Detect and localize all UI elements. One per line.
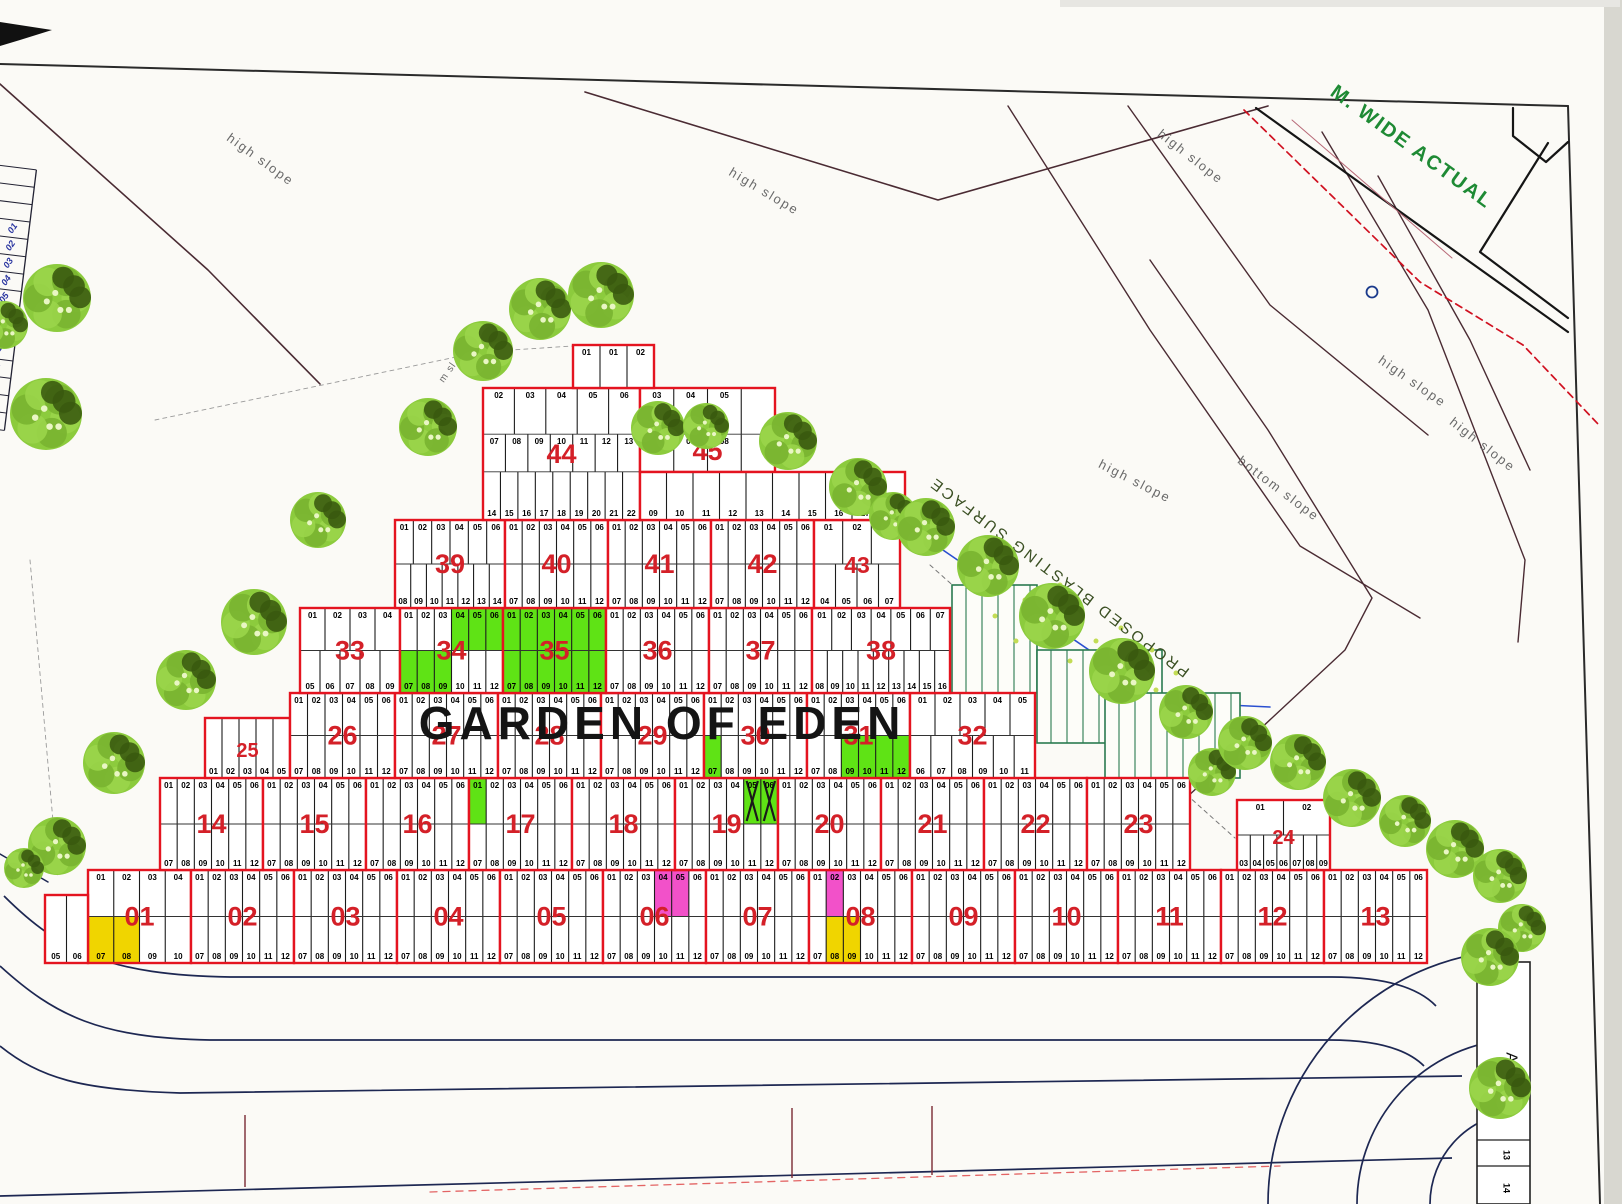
lot-number: 06 [1177, 781, 1186, 790]
lot-number: 12 [662, 859, 671, 868]
lot-number: 03 [332, 873, 341, 882]
block-number: 35 [539, 636, 569, 666]
lot-number: 08 [521, 952, 530, 961]
lot-number: 09 [831, 682, 840, 691]
lot-number: 12 [796, 952, 805, 961]
lot-number: 08 [398, 597, 407, 606]
lot-number: 06 [868, 781, 877, 790]
lot-number: 02 [212, 873, 221, 882]
lot-number: 11 [851, 859, 860, 868]
lot-number: 07 [1122, 952, 1131, 961]
lot-number: 03 [1022, 781, 1031, 790]
tree-icon [957, 535, 1019, 597]
plot-block-23: 01020304050607080910111223 [1087, 778, 1190, 870]
lot-number: 15 [505, 509, 514, 518]
lot-number: 01 [824, 523, 833, 532]
tree-icon [1379, 795, 1431, 847]
lot-number: 08 [212, 952, 221, 961]
lot-number: 02 [494, 391, 503, 400]
lot-number: 07 [404, 682, 413, 691]
lot-number: 02 [1139, 873, 1148, 882]
lot-number: 08 [958, 767, 967, 776]
block-number: 21 [917, 809, 947, 839]
lot-number: 11 [573, 952, 582, 961]
tree-icon [631, 401, 685, 455]
lot-number: 02 [732, 523, 741, 532]
lot-number: 11 [468, 767, 477, 776]
lot-number: 05 [784, 523, 793, 532]
lot-number: 05 [1088, 873, 1097, 882]
lot-number: 04 [1252, 859, 1261, 868]
lot-number: 11 [681, 597, 690, 606]
lot-number: 04 [937, 781, 946, 790]
lot-number: 07 [885, 597, 894, 606]
plot-block-33: 01020304050607080933 [300, 608, 400, 693]
lot-number: 06 [662, 781, 671, 790]
lot-number: 12 [728, 509, 737, 518]
lot-number: 08 [730, 682, 739, 691]
lot-number: 04 [1040, 781, 1049, 790]
tree-icon [1218, 716, 1272, 770]
lot-number: 04 [347, 696, 356, 705]
lot-number: 01 [1328, 873, 1337, 882]
lot-number: 14 [907, 682, 916, 691]
plot-block-annex: 010102 [573, 345, 654, 388]
lot-number: 05 [782, 611, 791, 620]
lot-number: 07 [612, 597, 621, 606]
lot-number: 12 [698, 597, 707, 606]
lot-number: 06 [326, 682, 335, 691]
lot-number: 01 [582, 348, 591, 357]
block-number: 23 [1123, 809, 1153, 839]
lot-number: 10 [1040, 859, 1049, 868]
lot-number: 10 [216, 859, 225, 868]
lot-number: 12 [353, 859, 362, 868]
lot-number: 07 [164, 859, 173, 868]
lot-number: 01 [399, 696, 408, 705]
lot-number: 01 [1225, 873, 1234, 882]
lot-number: 01 [400, 523, 409, 532]
lot-number: 06 [1105, 873, 1114, 882]
lot-number: 03 [610, 781, 619, 790]
lot-number: 09 [538, 952, 547, 961]
lot-number: 05 [233, 781, 242, 790]
lot-number: 06 [384, 873, 393, 882]
lot-number: 09 [978, 767, 987, 776]
block-number: 16 [402, 809, 432, 839]
lot-number: 12 [897, 767, 906, 776]
lot-number: 17 [540, 509, 549, 518]
lot-number: 14 [487, 509, 496, 518]
tree-icon [399, 398, 457, 456]
lot-number: 11 [264, 952, 273, 961]
lot-number: 08 [512, 437, 521, 446]
tree-icon [83, 732, 145, 794]
lot-number: 07 [1225, 952, 1234, 961]
lot-number: 02 [315, 873, 324, 882]
block-number: 26 [327, 721, 357, 751]
lot-number: 07 [502, 767, 511, 776]
lot-number: 11 [542, 859, 551, 868]
lot-number: 05 [748, 781, 757, 790]
lot-number: 02 [122, 873, 131, 882]
lot-number: 07 [710, 952, 719, 961]
lot-number: 12 [281, 952, 290, 961]
lot-number: 08 [1345, 952, 1354, 961]
site-plan-page: GARDEN OF EDEN 0102030405060701020301020… [0, 0, 1622, 1204]
lot-number: 06 [693, 873, 702, 882]
lot-number: 04 [664, 523, 673, 532]
lot-number: 11 [645, 859, 654, 868]
lot-number: 02 [312, 696, 321, 705]
lot-number: 03 [435, 873, 444, 882]
lot-number: 07 [96, 952, 105, 961]
lot-number: 07 [473, 859, 482, 868]
lot-number: 09 [148, 952, 157, 961]
plot-block-20: 01020304050607080910111220 [778, 778, 881, 870]
lot-number: 01 [509, 523, 518, 532]
lot-number: 03 [526, 391, 535, 400]
block-number: 32 [957, 721, 987, 751]
lot-number: 07 [916, 952, 925, 961]
lot-number: 08 [1139, 952, 1148, 961]
lot-number: 03 [198, 781, 207, 790]
lot-number: 02 [418, 523, 427, 532]
lot-number: 04 [247, 873, 256, 882]
lot-number: 05 [439, 781, 448, 790]
lot-number: 01 [308, 611, 317, 620]
lot-number: 05 [896, 611, 905, 620]
lot-number: 02 [629, 523, 638, 532]
lot-number: 08 [387, 859, 396, 868]
lot-number: 12 [559, 859, 568, 868]
lot-number: 11 [985, 952, 994, 961]
lot-number: 05 [336, 781, 345, 790]
lot-number: 11 [365, 767, 374, 776]
lot-number: 01 [504, 873, 513, 882]
lot-number: 08 [799, 859, 808, 868]
lot-number: 10 [456, 682, 465, 691]
lot-number: 06 [1311, 873, 1320, 882]
lot-number: 13 [755, 509, 764, 518]
lot-number: 10 [760, 767, 769, 776]
plot-block-25: 010203040525 [205, 718, 290, 778]
lot-number: 09 [1156, 952, 1165, 961]
lot-number: 09 [610, 859, 619, 868]
lot-number: 07 [370, 859, 379, 868]
lot-number: 09 [1362, 952, 1371, 961]
lot-number: 12 [384, 952, 393, 961]
lot-number: 12 [693, 952, 702, 961]
lot-number: 07 [813, 952, 822, 961]
lot-number: 01 [298, 873, 307, 882]
lot-number: 04 [556, 873, 565, 882]
lot-number: 03 [652, 391, 661, 400]
lot-number: 03 [857, 611, 866, 620]
lot-number: 08 [312, 767, 321, 776]
lot-number: 01 [612, 523, 621, 532]
tree-icon [1469, 1057, 1531, 1119]
lot-number: 12 [799, 682, 808, 691]
lot-number: 08 [524, 682, 533, 691]
lot-number: 05 [51, 952, 60, 961]
lot-number: 10 [657, 767, 666, 776]
lot-number: 10 [767, 597, 776, 606]
block-number: 03 [330, 902, 360, 932]
tree-icon [156, 650, 216, 710]
lot-number: 10 [422, 859, 431, 868]
lot-number: 04 [260, 767, 269, 776]
block-number: 20 [814, 809, 844, 839]
lot-number: 11 [784, 597, 793, 606]
lot-number: 05 [779, 873, 788, 882]
lot-number: 03 [1259, 873, 1268, 882]
lot-number: 12 [588, 767, 597, 776]
block-number: 17 [505, 809, 535, 839]
lot-number: 04 [319, 781, 328, 790]
lot-number: 19 [574, 509, 583, 518]
lot-number: 05 [1160, 781, 1169, 790]
plot-block-17: 01020304050607080910111217 [469, 778, 572, 870]
block-number: 11 [1155, 902, 1184, 932]
lot-number: 08 [421, 682, 430, 691]
lot-number: 02 [1036, 873, 1045, 882]
plot-block-15: 01020304050607080910111215 [263, 778, 366, 870]
lot-number: 07 [401, 952, 410, 961]
lot-number: 05 [573, 873, 582, 882]
lot-number: 11 [777, 767, 786, 776]
lot-number: 10 [765, 682, 774, 691]
lot-number: 07 [1091, 859, 1100, 868]
lot-number: 12 [868, 859, 877, 868]
lot-number: 06 [250, 781, 259, 790]
lot-number: 12 [487, 952, 496, 961]
lot-number: 05 [851, 781, 860, 790]
plot-block-10: 01020304050607080910111210 [1015, 870, 1118, 963]
lot-number: 09 [747, 682, 756, 691]
lot-number: 03 [641, 873, 650, 882]
lot-number: 06 [698, 523, 707, 532]
block-number: 10 [1051, 902, 1081, 932]
lot-number: 06 [593, 611, 602, 620]
vegetation-speckle [1014, 639, 1019, 644]
lot-number: 08 [627, 682, 636, 691]
lot-number: 09 [198, 859, 207, 868]
block-number: 36 [642, 636, 672, 666]
lot-number: 11 [1191, 952, 1200, 961]
lot-number: 11 [571, 767, 580, 776]
lot-number: 07 [605, 767, 614, 776]
lot-number: 08 [519, 767, 528, 776]
lot-number: 08 [622, 767, 631, 776]
lot-number: 11 [1397, 952, 1406, 961]
lot-number: 06 [796, 873, 805, 882]
lot-number: 07 [811, 767, 820, 776]
lot-number: 10 [659, 952, 668, 961]
lot-number: 01 [370, 781, 379, 790]
lot-number: 11 [367, 952, 376, 961]
lot-number: 12 [1177, 859, 1186, 868]
block-number: 09 [948, 902, 978, 932]
lot-number: 10 [347, 767, 356, 776]
lot-number: 09 [536, 767, 545, 776]
lot-number: 05 [645, 781, 654, 790]
tree-icon [1159, 685, 1213, 739]
lot-number: 09 [301, 859, 310, 868]
lot-number: 03 [436, 523, 445, 532]
lot-number: 12 [490, 682, 499, 691]
lot-number: 06 [916, 767, 925, 776]
lot-number: 07 [937, 767, 946, 776]
lot-number: 08 [284, 859, 293, 868]
lot-number: 09 [438, 682, 447, 691]
block-number: 18 [608, 809, 638, 839]
lot-number: 01 [404, 611, 413, 620]
lot-number: 10 [554, 767, 563, 776]
lot-number: 09 [1022, 859, 1031, 868]
lot-number: 08 [815, 682, 824, 691]
lot-number: 01 [607, 873, 616, 882]
lot-number: 04 [350, 873, 359, 882]
lot-number: 12 [456, 859, 465, 868]
lot-number: 11 [676, 952, 685, 961]
lot-number: 10 [559, 682, 568, 691]
lot-number: 02 [830, 873, 839, 882]
lot-number: 01 [710, 873, 719, 882]
lot-number: 02 [636, 348, 645, 357]
lot-number: 05 [1294, 873, 1303, 882]
plot-block-09: 01020304050607080910111209 [912, 870, 1015, 963]
lot-number: 07 [1328, 952, 1337, 961]
plot-block-11: 01020304050607080910111211 [1118, 870, 1221, 963]
lot-number: 08 [1306, 859, 1315, 868]
lot-number: 11 [779, 952, 788, 961]
lot-number: 01 [294, 696, 303, 705]
lot-number: 10 [865, 952, 874, 961]
lot-number: 04 [731, 781, 740, 790]
lot-number: 01 [782, 781, 791, 790]
lot-number: 09 [742, 767, 751, 776]
block-number: 05 [536, 902, 566, 932]
plot-block-08: 01020304050607080910111208 [809, 870, 912, 963]
lot-number: 09 [404, 859, 413, 868]
lot-number: 01 [401, 873, 410, 882]
lot-number: 07 [195, 952, 204, 961]
lot-number: 09 [229, 952, 238, 961]
lot-number: 04 [453, 873, 462, 882]
lot-number: 05 [588, 391, 597, 400]
lot-number: 06 [765, 781, 774, 790]
tree-icon [4, 848, 44, 888]
lot-number: 11 [1020, 767, 1029, 776]
lot-number: 05 [470, 873, 479, 882]
lot-number: 05 [681, 523, 690, 532]
lot-number: 02 [727, 873, 736, 882]
block-number: 34 [436, 636, 466, 666]
lot-number: 01 [610, 611, 619, 620]
lot-number: 01 [609, 348, 618, 357]
lot-number: 07 [679, 859, 688, 868]
lot-number: 07 [399, 767, 408, 776]
lot-number: 03 [507, 781, 516, 790]
lot-number: 05 [264, 873, 273, 882]
plot-block-04: 01020304050607080910111204 [397, 870, 500, 963]
tree-icon [759, 412, 817, 470]
lot-number: 05 [364, 696, 373, 705]
lot-number: 02 [730, 611, 739, 620]
lot-number: 09 [816, 859, 825, 868]
lot-number: 04 [1277, 873, 1286, 882]
lot-number: 10 [1071, 952, 1080, 961]
lot-number: 04 [765, 611, 774, 620]
lot-number: 12 [590, 952, 599, 961]
lot-number: 01 [96, 873, 105, 882]
block-number: 01 [124, 902, 154, 932]
lot-number: 03 [644, 611, 653, 620]
lot-number: 05 [720, 391, 729, 400]
lot-number: 11 [882, 952, 891, 961]
lot-number: 09 [541, 682, 550, 691]
lot-number: 12 [1208, 952, 1217, 961]
lot-number: 11 [1057, 859, 1066, 868]
lot-number: 03 [1053, 873, 1062, 882]
lot-number: 05 [1397, 873, 1406, 882]
plot-block-05: 01020304050607080910111205 [500, 870, 603, 963]
lot-number: 12 [1414, 952, 1423, 961]
tree-icon [23, 264, 91, 332]
lot-number: 04 [1174, 873, 1183, 882]
lot-number: 05 [1057, 781, 1066, 790]
lot-number: 07 [490, 437, 499, 446]
lot-number: 06 [595, 523, 604, 532]
lot-number: 01 [473, 781, 482, 790]
tree-icon [683, 403, 729, 449]
lot-number: 04 [1380, 873, 1389, 882]
lot-number: 21 [609, 509, 618, 518]
lot-number: 02 [181, 781, 190, 790]
lot-number: 09 [1053, 952, 1062, 961]
plot-block-39: 0102030405060809101112131439 [395, 520, 505, 608]
tree-icon [1089, 638, 1155, 704]
lot-number: 03 [1362, 873, 1371, 882]
plot-block-03: 01020304050607080910111203 [294, 870, 397, 963]
lot-number: 02 [853, 523, 862, 532]
lot-number: 02 [524, 611, 533, 620]
lot-number: 04 [993, 696, 1002, 705]
lot-number: 12 [794, 767, 803, 776]
lot-number: 03 [1125, 781, 1134, 790]
lot-number: 01 [1256, 803, 1265, 812]
block-number: 44 [546, 439, 576, 469]
lot-number: 03 [816, 781, 825, 790]
lot-number: 07 [504, 952, 513, 961]
lot-number: 08 [1242, 952, 1251, 961]
plot-block-36: 01020304050607080910111236 [606, 608, 709, 693]
lot-number: 05 [277, 767, 286, 776]
lot-number: 05 [576, 611, 585, 620]
lot-number: 01 [1122, 873, 1131, 882]
plot-block-44: 0203040506070809101112131415161718192021… [483, 388, 640, 520]
block-number: 06 [639, 902, 669, 932]
lot-number: 03 [713, 781, 722, 790]
block-number: 24 [1272, 827, 1295, 849]
lot-number: 03 [744, 873, 753, 882]
lot-number: 11 [782, 682, 791, 691]
lot-number: 15 [808, 509, 817, 518]
lot-number: 06 [1002, 873, 1011, 882]
lot-number: 16 [522, 509, 531, 518]
lot-number: 06 [490, 611, 499, 620]
